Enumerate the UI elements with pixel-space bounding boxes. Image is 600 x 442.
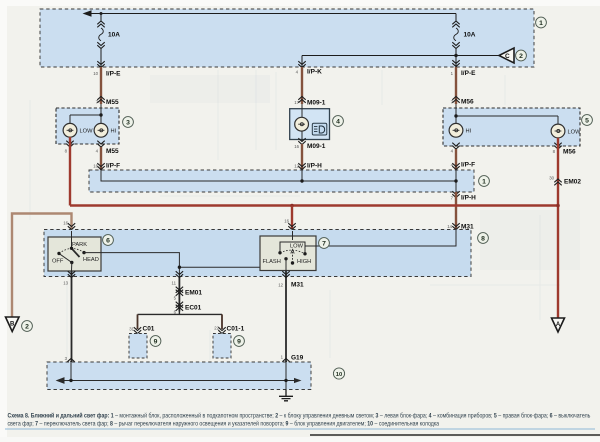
- svg-text:10A: 10A: [108, 32, 120, 39]
- svg-text:31: 31: [129, 327, 134, 332]
- svg-text:Схема 8. Ближний и дальний све: Схема 8. Ближний и дальний свет фар: 1 –…: [8, 412, 591, 420]
- svg-text:M55: M55: [106, 148, 119, 155]
- svg-text:12: 12: [294, 164, 299, 169]
- svg-text:M09-1: M09-1: [307, 143, 326, 150]
- svg-text:12: 12: [278, 283, 283, 288]
- svg-text:16: 16: [63, 221, 68, 226]
- svg-text:M31: M31: [291, 282, 304, 289]
- svg-text:LOW: LOW: [80, 129, 94, 135]
- svg-text:C01: C01: [143, 326, 155, 333]
- svg-text:C: C: [505, 53, 510, 60]
- svg-text:10: 10: [93, 71, 98, 76]
- svg-text:LOW: LOW: [290, 244, 304, 250]
- svg-text:I/P-F: I/P-F: [106, 163, 120, 170]
- svg-text:FLASH: FLASH: [263, 259, 281, 265]
- svg-text:6: 6: [106, 238, 110, 245]
- svg-text:I/P-H: I/P-H: [461, 195, 476, 202]
- svg-text:30: 30: [549, 176, 554, 181]
- svg-text:2: 2: [519, 53, 523, 60]
- svg-text:3: 3: [126, 120, 130, 127]
- svg-text:14: 14: [447, 224, 452, 229]
- svg-text:A: A: [556, 322, 561, 328]
- svg-text:HEAD: HEAD: [83, 257, 99, 263]
- svg-text:EM01: EM01: [185, 290, 202, 297]
- svg-text:22: 22: [214, 326, 219, 331]
- svg-text:PARK: PARK: [72, 242, 87, 248]
- svg-text:5: 5: [585, 118, 589, 125]
- svg-text:16: 16: [294, 144, 299, 149]
- svg-text:10A: 10A: [464, 32, 476, 39]
- svg-text:9: 9: [237, 339, 241, 346]
- svg-text:B: B: [10, 322, 15, 328]
- svg-text:HI: HI: [466, 129, 472, 135]
- svg-text:16: 16: [93, 164, 98, 169]
- svg-text:17: 17: [294, 100, 299, 105]
- svg-text:M56: M56: [563, 149, 576, 156]
- svg-text:4: 4: [336, 119, 340, 126]
- svg-text:2: 2: [25, 324, 29, 331]
- svg-text:M56: M56: [461, 99, 474, 106]
- svg-text:G19: G19: [291, 355, 304, 362]
- svg-text:10: 10: [336, 372, 342, 378]
- svg-text:I/P-E: I/P-E: [461, 70, 476, 77]
- svg-text:EM02: EM02: [564, 179, 581, 186]
- svg-text:11: 11: [172, 281, 177, 286]
- svg-text:8: 8: [481, 236, 485, 243]
- svg-text:7: 7: [322, 241, 326, 248]
- svg-text:I/P-F: I/P-F: [461, 162, 475, 169]
- svg-text:EC01: EC01: [185, 305, 202, 312]
- svg-text:света фар; 7 – переключатель с: света фар; 7 – переключатель света фар; …: [8, 420, 440, 428]
- svg-text:HIGH: HIGH: [297, 259, 311, 265]
- svg-text:9: 9: [154, 339, 158, 346]
- svg-text:M55: M55: [106, 99, 119, 106]
- svg-text:I/P-H: I/P-H: [307, 163, 322, 170]
- svg-text:OFF: OFF: [52, 259, 64, 265]
- svg-text:I/P-K: I/P-K: [307, 69, 322, 76]
- svg-text:C01-1: C01-1: [227, 326, 245, 333]
- svg-text:I/P-E: I/P-E: [106, 71, 121, 78]
- svg-text:1: 1: [482, 179, 486, 186]
- svg-text:16: 16: [284, 219, 289, 224]
- svg-text:LOW: LOW: [568, 129, 582, 135]
- svg-text:HI: HI: [111, 129, 117, 135]
- svg-text:M09-1: M09-1: [307, 100, 326, 107]
- svg-text:1: 1: [539, 20, 543, 27]
- svg-text:13: 13: [63, 281, 68, 286]
